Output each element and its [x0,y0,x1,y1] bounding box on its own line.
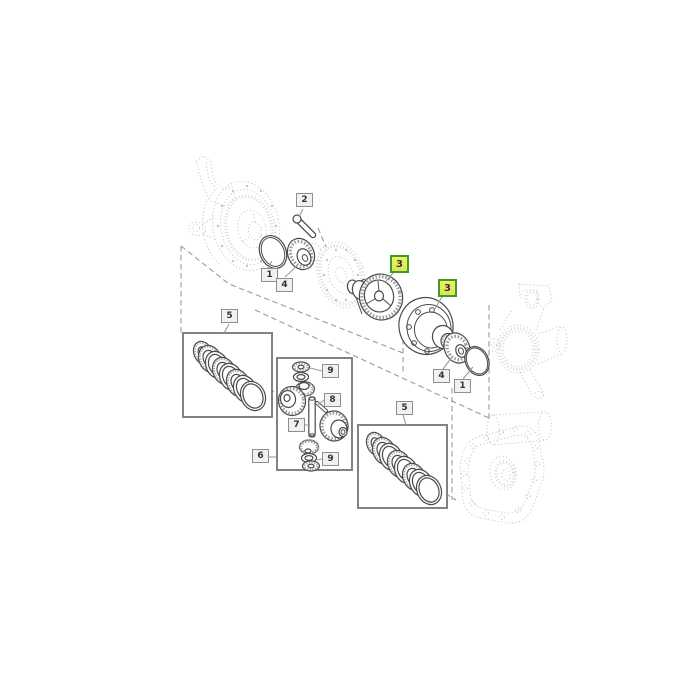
callout-2[interactable]: 2 [296,193,313,207]
cross-shaft [309,397,315,437]
diff-case-half-flange-part [346,269,407,324]
spider-gear-kit-box [276,358,352,471]
bearing-cone-part-left [283,234,320,274]
clutch-pack-box-right [358,425,447,509]
callout-9-top[interactable]: 9 [322,364,339,378]
callout-4-right[interactable]: 4 [433,369,450,383]
diagram-linework [0,0,700,700]
roll-pin-part [293,215,313,235]
callout-5-right[interactable]: 5 [396,401,413,415]
callout-3-highlighted-a[interactable]: 3 [390,255,409,273]
center-housing-ghost [460,412,551,523]
axle-tube-housing-ghost [489,284,568,399]
clutch-pack-box-left [183,333,272,417]
parts-diagram-canvas: 2 1 4 3 3 5 9 8 7 6 9 4 1 5 [0,0,700,700]
callout-9-bottom[interactable]: 9 [322,452,339,466]
callout-4-left[interactable]: 4 [276,278,293,292]
callout-7[interactable]: 7 [288,418,305,432]
callout-3-highlighted-b[interactable]: 3 [438,279,457,297]
bevel-pinion-bottom [300,440,319,454]
callout-5-left[interactable]: 5 [221,309,238,323]
callout-8[interactable]: 8 [324,393,341,407]
callout-1-right[interactable]: 1 [454,379,471,393]
callout-6[interactable]: 6 [252,449,269,463]
